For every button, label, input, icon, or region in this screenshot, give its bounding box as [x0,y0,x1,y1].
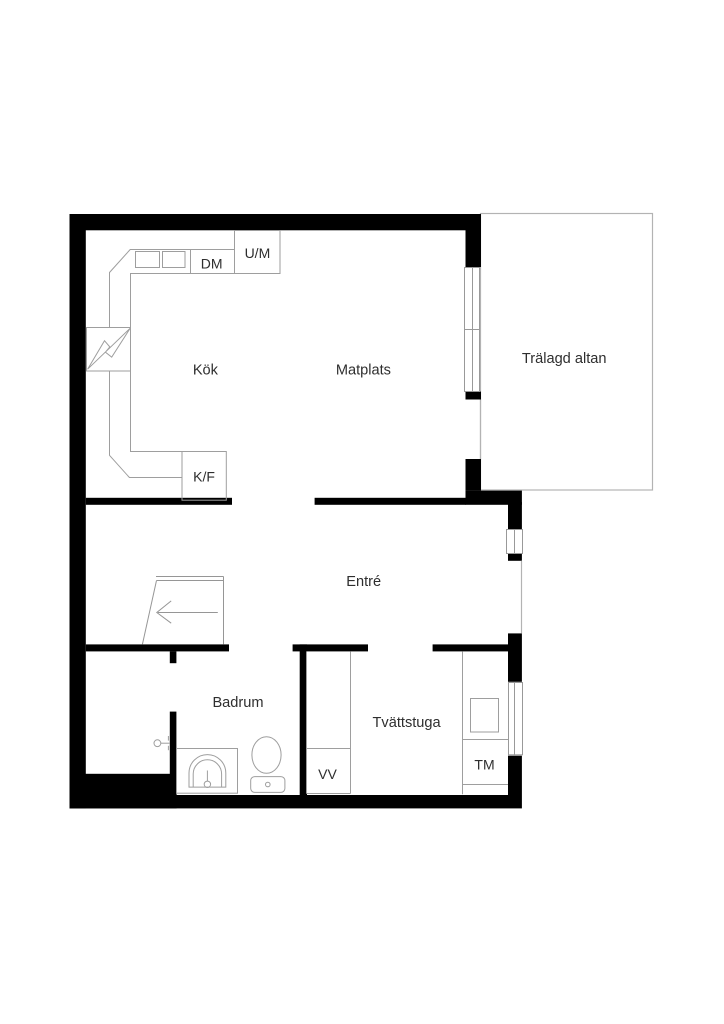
svg-text:Matplats: Matplats [336,363,391,379]
svg-text:Entré: Entré [346,574,381,590]
svg-text:DM: DM [201,256,223,272]
svg-text:Kök: Kök [193,363,219,379]
svg-text:Badrum: Badrum [212,695,263,711]
svg-text:Trälagd altan: Trälagd altan [522,351,607,367]
svg-text:U/M: U/M [245,245,271,261]
svg-text:VV: VV [318,766,337,782]
svg-text:Tvättstuga: Tvättstuga [373,715,442,731]
svg-text:TM: TM [474,757,494,773]
svg-text:K/F: K/F [193,469,215,485]
